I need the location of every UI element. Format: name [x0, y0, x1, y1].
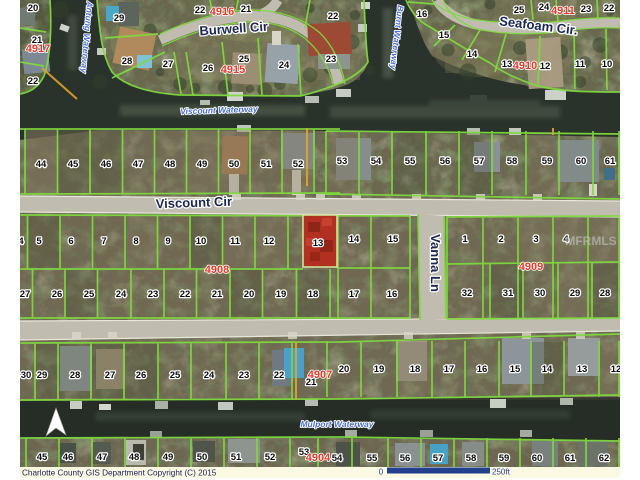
- svg-text:62: 62: [599, 453, 610, 464]
- svg-text:4911: 4911: [551, 5, 575, 17]
- svg-text:Charlotte County GIS Departmen: Charlotte County GIS Department Copyrigh…: [22, 469, 217, 478]
- svg-text:27: 27: [105, 370, 116, 381]
- svg-text:25: 25: [84, 289, 95, 300]
- svg-text:17: 17: [349, 289, 360, 300]
- svg-text:60: 60: [532, 453, 543, 464]
- svg-text:45: 45: [68, 159, 79, 170]
- svg-text:23: 23: [148, 289, 159, 300]
- svg-text:52: 52: [293, 159, 304, 170]
- svg-text:55: 55: [367, 453, 378, 464]
- svg-text:12: 12: [611, 364, 622, 375]
- svg-text:Vanna Ln: Vanna Ln: [428, 234, 443, 292]
- svg-text:19: 19: [276, 289, 287, 300]
- svg-text:51: 51: [261, 159, 272, 170]
- svg-text:21: 21: [241, 4, 252, 15]
- svg-text:24: 24: [279, 60, 290, 71]
- svg-text:45: 45: [37, 452, 48, 463]
- svg-text:1: 1: [462, 234, 468, 245]
- svg-text:32: 32: [462, 288, 473, 299]
- svg-text:24: 24: [539, 2, 550, 13]
- svg-text:53: 53: [337, 156, 348, 167]
- svg-text:22: 22: [274, 370, 285, 381]
- svg-text:28: 28: [122, 56, 133, 67]
- svg-text:56: 56: [400, 453, 411, 464]
- svg-text:3: 3: [533, 234, 538, 245]
- svg-text:46: 46: [101, 159, 112, 170]
- svg-text:28: 28: [70, 370, 81, 381]
- svg-text:14: 14: [467, 49, 478, 60]
- svg-text:30: 30: [21, 370, 32, 381]
- svg-text:52: 52: [265, 452, 276, 463]
- svg-text:18: 18: [410, 364, 421, 375]
- svg-text:27: 27: [20, 289, 31, 300]
- svg-text:22: 22: [195, 5, 206, 16]
- svg-text:18: 18: [308, 289, 319, 300]
- svg-text:26: 26: [203, 63, 214, 74]
- svg-text:12: 12: [264, 236, 275, 247]
- svg-text:5: 5: [36, 236, 42, 247]
- svg-text:22: 22: [604, 3, 615, 14]
- svg-text:46: 46: [63, 452, 74, 463]
- svg-text:0: 0: [379, 468, 384, 477]
- svg-text:9: 9: [165, 236, 170, 247]
- svg-text:50: 50: [197, 452, 208, 463]
- svg-text:20: 20: [339, 364, 350, 375]
- svg-text:23: 23: [239, 370, 250, 381]
- svg-text:13: 13: [313, 238, 324, 249]
- svg-text:13: 13: [502, 59, 513, 70]
- svg-text:22: 22: [180, 289, 191, 300]
- svg-text:4904: 4904: [306, 452, 331, 464]
- svg-text:250ft: 250ft: [492, 468, 511, 477]
- svg-text:60: 60: [576, 156, 587, 167]
- svg-text:48: 48: [165, 159, 176, 170]
- svg-text:4907: 4907: [308, 369, 332, 381]
- svg-text:44: 44: [36, 159, 47, 170]
- svg-text:20: 20: [28, 3, 39, 14]
- svg-text:50: 50: [229, 159, 240, 170]
- svg-text:31: 31: [503, 288, 514, 299]
- svg-text:29: 29: [37, 370, 48, 381]
- svg-text:21: 21: [212, 289, 223, 300]
- svg-text:61: 61: [605, 156, 616, 167]
- svg-text:13: 13: [577, 364, 588, 375]
- svg-text:30: 30: [535, 288, 546, 299]
- svg-text:15: 15: [388, 234, 399, 245]
- svg-text:55: 55: [405, 156, 416, 167]
- svg-text:56: 56: [440, 156, 451, 167]
- svg-text:59: 59: [499, 453, 510, 464]
- svg-text:58: 58: [466, 453, 477, 464]
- svg-text:24: 24: [116, 289, 127, 300]
- svg-text:49: 49: [197, 159, 208, 170]
- svg-text:4917: 4917: [26, 43, 50, 55]
- svg-text:23: 23: [581, 4, 592, 15]
- svg-text:15: 15: [439, 30, 450, 41]
- svg-text:11: 11: [230, 236, 241, 247]
- svg-text:Mulport Waterway: Mulport Waterway: [300, 419, 374, 429]
- svg-text:25: 25: [170, 370, 181, 381]
- svg-text:4916: 4916: [210, 6, 234, 18]
- svg-text:2: 2: [498, 234, 503, 245]
- svg-text:10: 10: [602, 59, 613, 70]
- svg-text:20: 20: [244, 289, 255, 300]
- svg-text:23: 23: [326, 54, 337, 65]
- svg-text:22: 22: [328, 11, 339, 22]
- svg-text:29: 29: [570, 288, 581, 299]
- svg-text:58: 58: [507, 156, 518, 167]
- svg-text:4915: 4915: [221, 64, 245, 76]
- svg-text:51: 51: [231, 452, 242, 463]
- svg-text:54: 54: [332, 453, 343, 464]
- svg-text:47: 47: [97, 452, 108, 463]
- svg-text:16: 16: [477, 364, 488, 375]
- svg-text:12: 12: [540, 61, 551, 72]
- svg-text:57: 57: [433, 453, 444, 464]
- svg-text:29: 29: [114, 13, 125, 24]
- svg-text:MFRMLS: MFRMLS: [565, 234, 616, 248]
- svg-text:4909: 4909: [519, 261, 543, 273]
- svg-text:16: 16: [387, 289, 398, 300]
- svg-text:14: 14: [349, 234, 360, 245]
- svg-text:48: 48: [129, 452, 140, 463]
- svg-text:Viscount Cir: Viscount Cir: [155, 194, 232, 212]
- svg-text:26: 26: [136, 370, 147, 381]
- svg-text:7: 7: [101, 236, 106, 247]
- svg-text:11: 11: [575, 59, 586, 70]
- svg-text:27: 27: [163, 59, 174, 70]
- svg-text:24: 24: [204, 370, 215, 381]
- svg-text:28: 28: [600, 288, 611, 299]
- svg-text:4908: 4908: [205, 264, 229, 276]
- svg-text:16: 16: [417, 9, 428, 20]
- svg-text:59: 59: [542, 156, 553, 167]
- svg-text:10: 10: [196, 236, 207, 247]
- svg-text:14: 14: [542, 364, 553, 375]
- svg-text:15: 15: [510, 364, 521, 375]
- svg-text:22: 22: [28, 76, 39, 87]
- svg-text:54: 54: [371, 156, 382, 167]
- svg-text:17: 17: [444, 364, 455, 375]
- svg-text:4910: 4910: [513, 60, 537, 72]
- svg-text:26: 26: [52, 289, 63, 300]
- svg-text:6: 6: [68, 236, 73, 247]
- svg-text:47: 47: [133, 159, 144, 170]
- svg-text:49: 49: [163, 452, 174, 463]
- svg-text:57: 57: [474, 156, 485, 167]
- svg-text:8: 8: [133, 236, 138, 247]
- svg-text:19: 19: [374, 364, 385, 375]
- svg-text:61: 61: [565, 453, 576, 464]
